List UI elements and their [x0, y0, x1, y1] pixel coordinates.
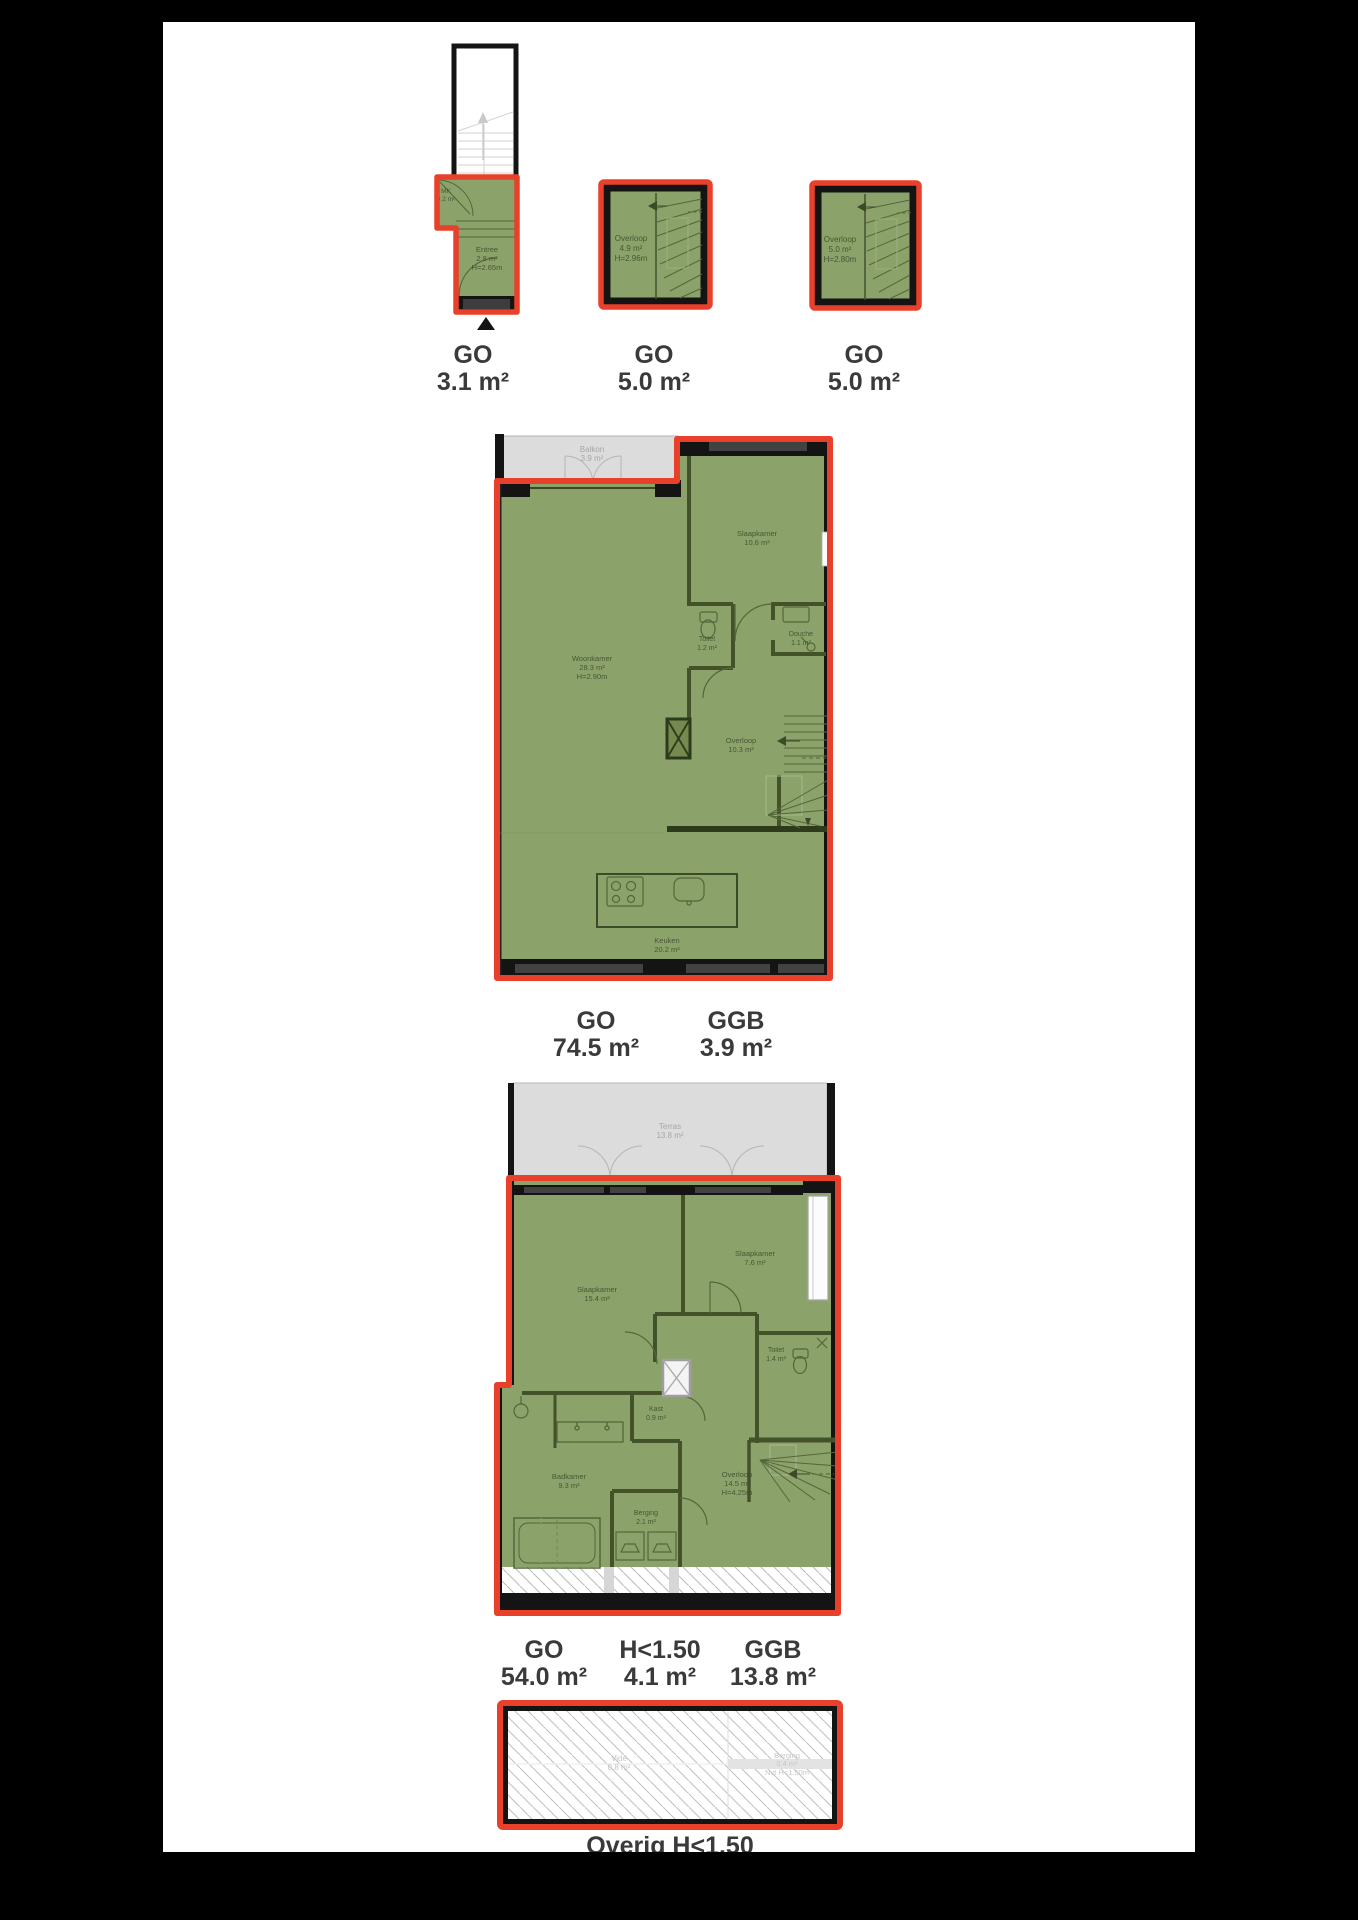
caption-category: GO: [437, 342, 509, 369]
floorplan-overloop-2: Overloop 5.0 m² H=2.80m: [808, 179, 923, 313]
caption-category: H<1.50: [619, 1637, 700, 1664]
room-label-overloop: Overloop: [824, 235, 857, 244]
room-label-terras: Terras: [659, 1122, 681, 1131]
room-label-overloop: Overloop: [726, 736, 756, 745]
room-label-slaapkamer1: Slaapkamer: [577, 1285, 618, 1294]
room-area-entree: 2.8 m²: [476, 254, 498, 263]
room-label-slaapkamer: Slaapkamer: [737, 529, 778, 538]
room-label-entree: Entree: [476, 245, 498, 254]
caption-area: 3.9 m²: [700, 1035, 772, 1062]
elevator-icon: [663, 1360, 690, 1396]
entrance-door: [463, 299, 510, 309]
go-area-woonverdieping: [497, 439, 830, 978]
caption-overloop-1: GO 5.0 m²: [618, 342, 690, 396]
room-area-kast: 0.9 m²: [646, 1415, 667, 1422]
room-area-toilet: 1.4 m²: [766, 1356, 787, 1363]
room-label-kast: Kast: [649, 1406, 663, 1413]
room-label-overloop: Overloop: [615, 234, 648, 243]
room-label-douche: Douche: [789, 631, 813, 638]
room-area-woonkamer: 28.3 m²: [579, 663, 605, 672]
caption-category: GGB: [700, 1008, 772, 1035]
room-area-slaapkamer: 10.6 m²: [744, 538, 770, 547]
room-area-terras: 13.8 m²: [656, 1131, 683, 1140]
floorplan-entree: MK 0.2 m² Entree 2.8 m² H=2.65m: [433, 42, 521, 334]
floorplan-overloop-1: Overloop 4.9 m² H=2.96m: [597, 178, 714, 312]
caption-slaapverdieping-h150: H<1.50 4.1 m²: [619, 1637, 700, 1691]
room-label-badkamer: Badkamer: [552, 1472, 587, 1481]
low-height-zone: [497, 1567, 838, 1595]
caption-area: 13.8 m²: [730, 1664, 816, 1691]
room-area-overloop: 5.0 m²: [829, 245, 852, 254]
room-label-balkon: Balkon: [580, 445, 604, 454]
floorplan-vliering: Vide 0.8 m² Berging 0.4 m² Nvt H<1.50m: [497, 1700, 843, 1834]
caption-area: 5.0 m²: [618, 369, 690, 396]
caption-slaapverdieping-ggb: GGB 13.8 m²: [730, 1637, 816, 1691]
caption-category: GO: [618, 342, 690, 369]
room-label-vide: Vide: [611, 1754, 627, 1763]
caption-area: 74.5 m²: [553, 1035, 639, 1062]
stair-shaft: [454, 46, 516, 182]
room-note-berging: Nvt H<1.50m: [765, 1768, 809, 1777]
room-height-woonkamer: H=2.90m: [577, 672, 608, 681]
room-area-berging: 0.4 m²: [776, 1759, 798, 1768]
room-label-toilet: Toilet: [699, 636, 715, 643]
terrace: Terras 13.8 m²: [508, 1083, 835, 1178]
screenshot-canvas: MK 0.2 m² Entree 2.8 m² H=2.65m Overloop…: [0, 0, 1358, 1920]
room-label-keuken: Keuken: [654, 936, 679, 945]
floorplan-slaapverdieping: Terras 13.8 m²: [487, 1080, 841, 1638]
room-height-entree: H=2.65m: [472, 263, 503, 272]
room-height-overloop: H=2.80m: [824, 255, 857, 264]
room-height-overloop: H=2.96m: [615, 254, 648, 263]
room-area-balkon: 3.9 m²: [581, 454, 604, 463]
room-area-badkamer: 9.3 m²: [558, 1481, 580, 1490]
room-area-overloop: 4.9 m²: [620, 244, 643, 253]
caption-entree: GO 3.1 m²: [437, 342, 509, 396]
caption-category: GO: [828, 342, 900, 369]
room-area-vide: 0.8 m²: [608, 1763, 631, 1772]
room-area-keuken: 20.2 m²: [654, 945, 680, 954]
caption-woonverdieping-ggb: GGB 3.9 m²: [700, 1008, 772, 1062]
caption-overloop-2: GO 5.0 m²: [828, 342, 900, 396]
caption-area: 5.0 m²: [828, 369, 900, 396]
room-area-slaapkamer1: 15.4 m²: [584, 1294, 610, 1303]
caption-category: Overig H<1.50: [586, 1833, 753, 1852]
caption-category: GO: [553, 1008, 639, 1035]
caption-category: GGB: [730, 1637, 816, 1664]
room-label-overloop: Overloop: [722, 1470, 752, 1479]
elevator-icon: [667, 719, 690, 758]
room-height-overloop: H=4.25m: [722, 1488, 753, 1497]
wardrobe: [808, 1196, 828, 1300]
caption-area: 54.0 m²: [501, 1664, 587, 1691]
caption-vliering-clipped: Overig H<1.50: [586, 1833, 753, 1852]
room-area-douche: 1.1 m²: [791, 640, 812, 647]
room-area-overloop: 14.5 m²: [724, 1479, 750, 1488]
floorplan-page: MK 0.2 m² Entree 2.8 m² H=2.65m Overloop…: [163, 22, 1195, 1852]
room-area-toilet: 1.2 m²: [697, 645, 718, 652]
caption-slaapverdieping-go: GO 54.0 m²: [501, 1637, 587, 1691]
caption-category: GO: [501, 1637, 587, 1664]
caption-area: 4.1 m²: [619, 1664, 700, 1691]
room-label-toilet: Toilet: [768, 1347, 784, 1354]
entrance-arrow-icon: [477, 317, 495, 330]
room-label-woonkamer: Woonkamer: [572, 654, 613, 663]
room-area-overloop: 10.3 m²: [728, 745, 754, 754]
room-label-mk: MK: [441, 188, 451, 195]
room-area-slaapkamer2: 7.6 m²: [744, 1258, 766, 1267]
floorplan-woonverdieping: Balkon 3.9 m²: [489, 429, 836, 983]
room-label-slaapkamer2: Slaapkamer: [735, 1249, 776, 1258]
balcony: Balkon 3.9 m²: [495, 434, 678, 484]
caption-woonverdieping-go: GO 74.5 m²: [553, 1008, 639, 1062]
room-area-berging: 2.1 m²: [636, 1519, 657, 1526]
caption-area: 3.1 m²: [437, 369, 509, 396]
room-label-berging: Berging: [634, 1510, 658, 1517]
